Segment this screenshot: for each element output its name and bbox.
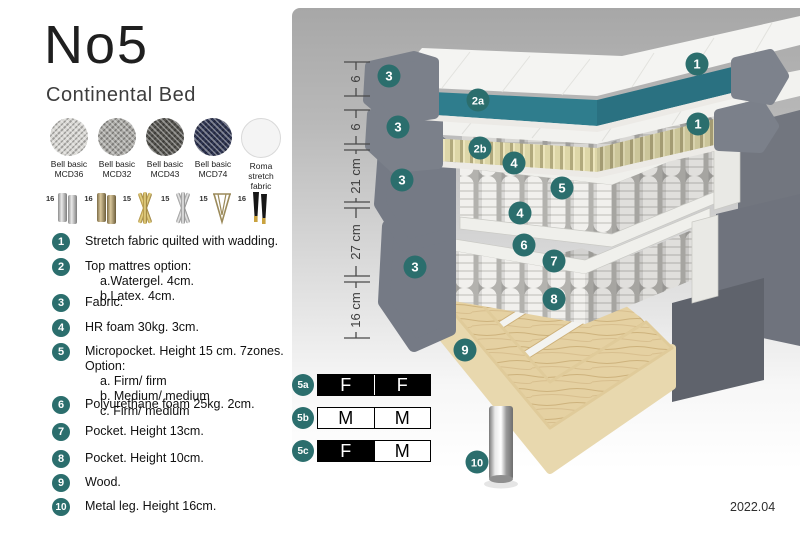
spec-text-line: Top mattres option:: [85, 259, 194, 274]
diagram-badge: 3: [378, 65, 401, 88]
firmness-badge: 5c: [292, 440, 314, 462]
firmness-cell: M: [374, 441, 431, 461]
diagram-badge: 10: [466, 451, 489, 474]
diagram-badge: 2b: [469, 137, 492, 160]
spec-text: Polyurethane foam 25kg. 2cm.: [85, 397, 255, 412]
product-sheet: { "header": { "title": "No5", "subtitle"…: [0, 0, 800, 533]
diagram-badge: 3: [391, 169, 414, 192]
diagram-panel: 6 6 21 cm 27 cm 16 cm 12a312b34543678391…: [292, 8, 800, 533]
spec-text: Pocket. Height 10cm.: [85, 451, 204, 466]
firmness-bar: MM: [317, 407, 431, 429]
spec-text-line: Pocket. Height 10cm.: [85, 451, 204, 466]
diagram-badge: 8: [543, 288, 566, 311]
diagram-badge-label: 2b: [474, 144, 487, 156]
spec-number-badge: 1: [52, 233, 70, 251]
diagram-badge-label: 8: [550, 292, 557, 307]
firmness-cell: M: [318, 408, 374, 428]
diagram-badge-label: 5: [558, 181, 565, 196]
firmness-cell: F: [318, 441, 374, 461]
spec-item: 1Stretch fabric quilted with wadding.: [52, 234, 292, 251]
diagram-badge: 1: [686, 53, 709, 76]
spec-text-line: a. Firm/ firm: [85, 374, 292, 389]
spec-item: 9Wood.: [52, 475, 292, 492]
spec-number-badge: 4: [52, 319, 70, 337]
diagram-badge-label: 10: [471, 458, 483, 470]
spec-number-badge: 9: [52, 474, 70, 492]
firmness-cell: M: [374, 408, 431, 428]
spec-item: 4HR foam 30kg. 3cm.: [52, 320, 292, 337]
firmness-bar: FF: [317, 374, 431, 396]
spec-number-badge: 5: [52, 343, 70, 361]
diagram-badge-label: 7: [550, 254, 557, 269]
diagram-badge-label: 2a: [472, 96, 485, 108]
dim-label: 21 cm: [348, 158, 363, 193]
diagram-badge-label: 3: [398, 173, 405, 188]
dim-label: 6: [348, 75, 363, 82]
firmness-bar: FM: [317, 440, 431, 462]
diagram-badge: 2a: [467, 89, 490, 112]
spec-number-badge: 6: [52, 396, 70, 414]
diagram-badge-label: 1: [694, 117, 701, 132]
spec-text: Fabric.: [85, 295, 123, 310]
diagram-badge: 4: [509, 202, 532, 225]
spec-list: 1Stretch fabric quilted with wadding.2To…: [0, 0, 295, 533]
spec-text-line: Fabric.: [85, 295, 123, 310]
spec-item: 6Polyurethane foam 25kg. 2cm.: [52, 397, 292, 414]
spec-number-badge: 8: [52, 450, 70, 468]
dim-label: 27 cm: [348, 224, 363, 259]
spec-number-badge: 10: [52, 498, 70, 516]
diagram-badge: 9: [454, 339, 477, 362]
diagram-badge-label: 3: [385, 69, 392, 84]
spec-number-badge: 7: [52, 423, 70, 441]
firmness-badge: 5a: [292, 374, 314, 396]
spec-number-badge: 3: [52, 294, 70, 312]
diagram-badge: 3: [404, 256, 427, 279]
firmness-cell: F: [374, 375, 431, 395]
diagram-badge-label: 9: [461, 343, 468, 358]
spec-text: Stretch fabric quilted with wadding.: [85, 234, 278, 249]
diagram-badge-label: 4: [510, 156, 518, 171]
diagram-badge-label: 6: [520, 238, 527, 253]
spec-text: HR foam 30kg. 3cm.: [85, 320, 199, 335]
spec-text-line: Stretch fabric quilted with wadding.: [85, 234, 278, 249]
dim-label: 16 cm: [348, 292, 363, 327]
diagram-badge: 4: [503, 152, 526, 175]
spec-item: 10Metal leg. Height 16cm.: [52, 499, 292, 516]
diagram-badge: 1: [687, 113, 710, 136]
spec-text-line: Metal leg. Height 16cm.: [85, 499, 216, 514]
spec-text: Pocket. Height 13cm.: [85, 424, 204, 439]
spec-item: 7Pocket. Height 13cm.: [52, 424, 292, 441]
diagram-badge: 6: [513, 234, 536, 257]
firmness-cell: F: [318, 375, 374, 395]
spec-item: 8Pocket. Height 10cm.: [52, 451, 292, 468]
firmness-badge: 5b: [292, 407, 314, 429]
diagram-badge: 5: [551, 177, 574, 200]
diagram-badge-label: 1: [693, 57, 700, 72]
spec-text-line: a.Watergel. 4cm.: [85, 274, 194, 289]
diagram-badge-label: 3: [411, 260, 418, 275]
spec-number-badge: 2: [52, 258, 70, 276]
spec-text: Wood.: [85, 475, 121, 490]
diagram-badge: 3: [387, 116, 410, 139]
spec-item: 3Fabric.: [52, 295, 292, 312]
spec-text-line: HR foam 30kg. 3cm.: [85, 320, 199, 335]
diagram-badge: 7: [543, 250, 566, 273]
bed-front-leg: [484, 406, 518, 489]
spec-text-line: Wood.: [85, 475, 121, 490]
spec-text-line: Micropocket. Height 15 cm. 7zones. Optio…: [85, 344, 292, 374]
version-label: 2022.04: [730, 500, 775, 514]
dim-label: 6: [348, 123, 363, 130]
diagram-badge-label: 4: [516, 206, 524, 221]
diagram-badge-label: 3: [394, 120, 401, 135]
spec-text: Metal leg. Height 16cm.: [85, 499, 216, 514]
spec-text-line: Polyurethane foam 25kg. 2cm.: [85, 397, 255, 412]
spec-text-line: Pocket. Height 13cm.: [85, 424, 204, 439]
